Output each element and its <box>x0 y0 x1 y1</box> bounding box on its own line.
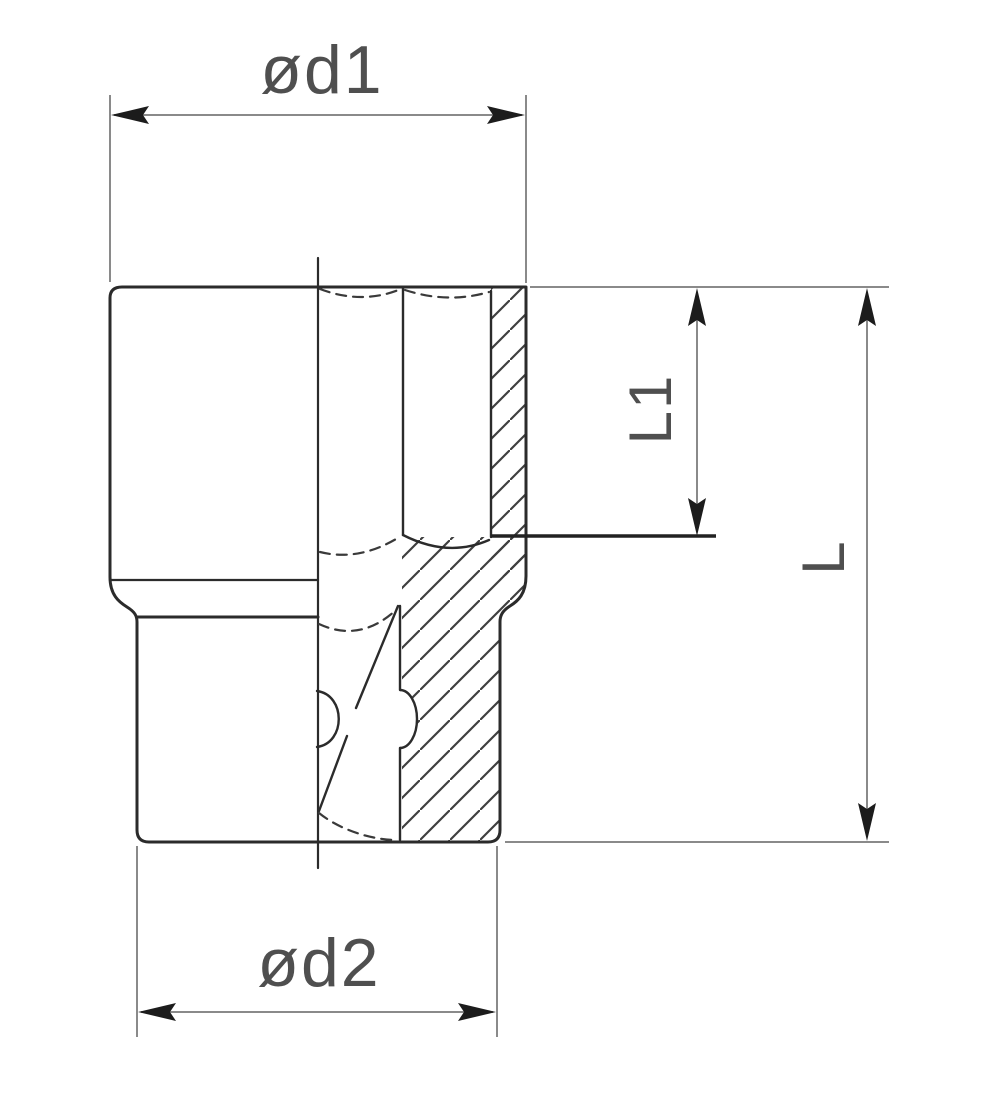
square-corner-diagonal-upper <box>356 606 398 708</box>
ball-detent-arc <box>317 691 339 747</box>
hatch-lower-body <box>402 537 526 842</box>
label-l: L <box>794 539 854 574</box>
square-bottom-arc <box>319 813 397 840</box>
hex-top-arc-right <box>405 290 489 298</box>
square-top-arc <box>319 610 396 631</box>
technical-drawing-canvas: ød1 ød2 L1 L <box>0 0 1000 1110</box>
square-corner-diagonal-lower <box>319 736 347 811</box>
dimension-d1 <box>110 95 526 283</box>
hatch-upper-wall <box>491 288 526 576</box>
section-hatching <box>402 288 526 842</box>
label-d1: ød1 <box>260 36 383 104</box>
label-d2: ød2 <box>257 929 380 997</box>
hex-top-arc-left <box>320 289 401 297</box>
hex-bottom-arc-left <box>320 536 401 555</box>
hex-cavity <box>320 288 491 555</box>
label-l1: L1 <box>621 374 681 445</box>
